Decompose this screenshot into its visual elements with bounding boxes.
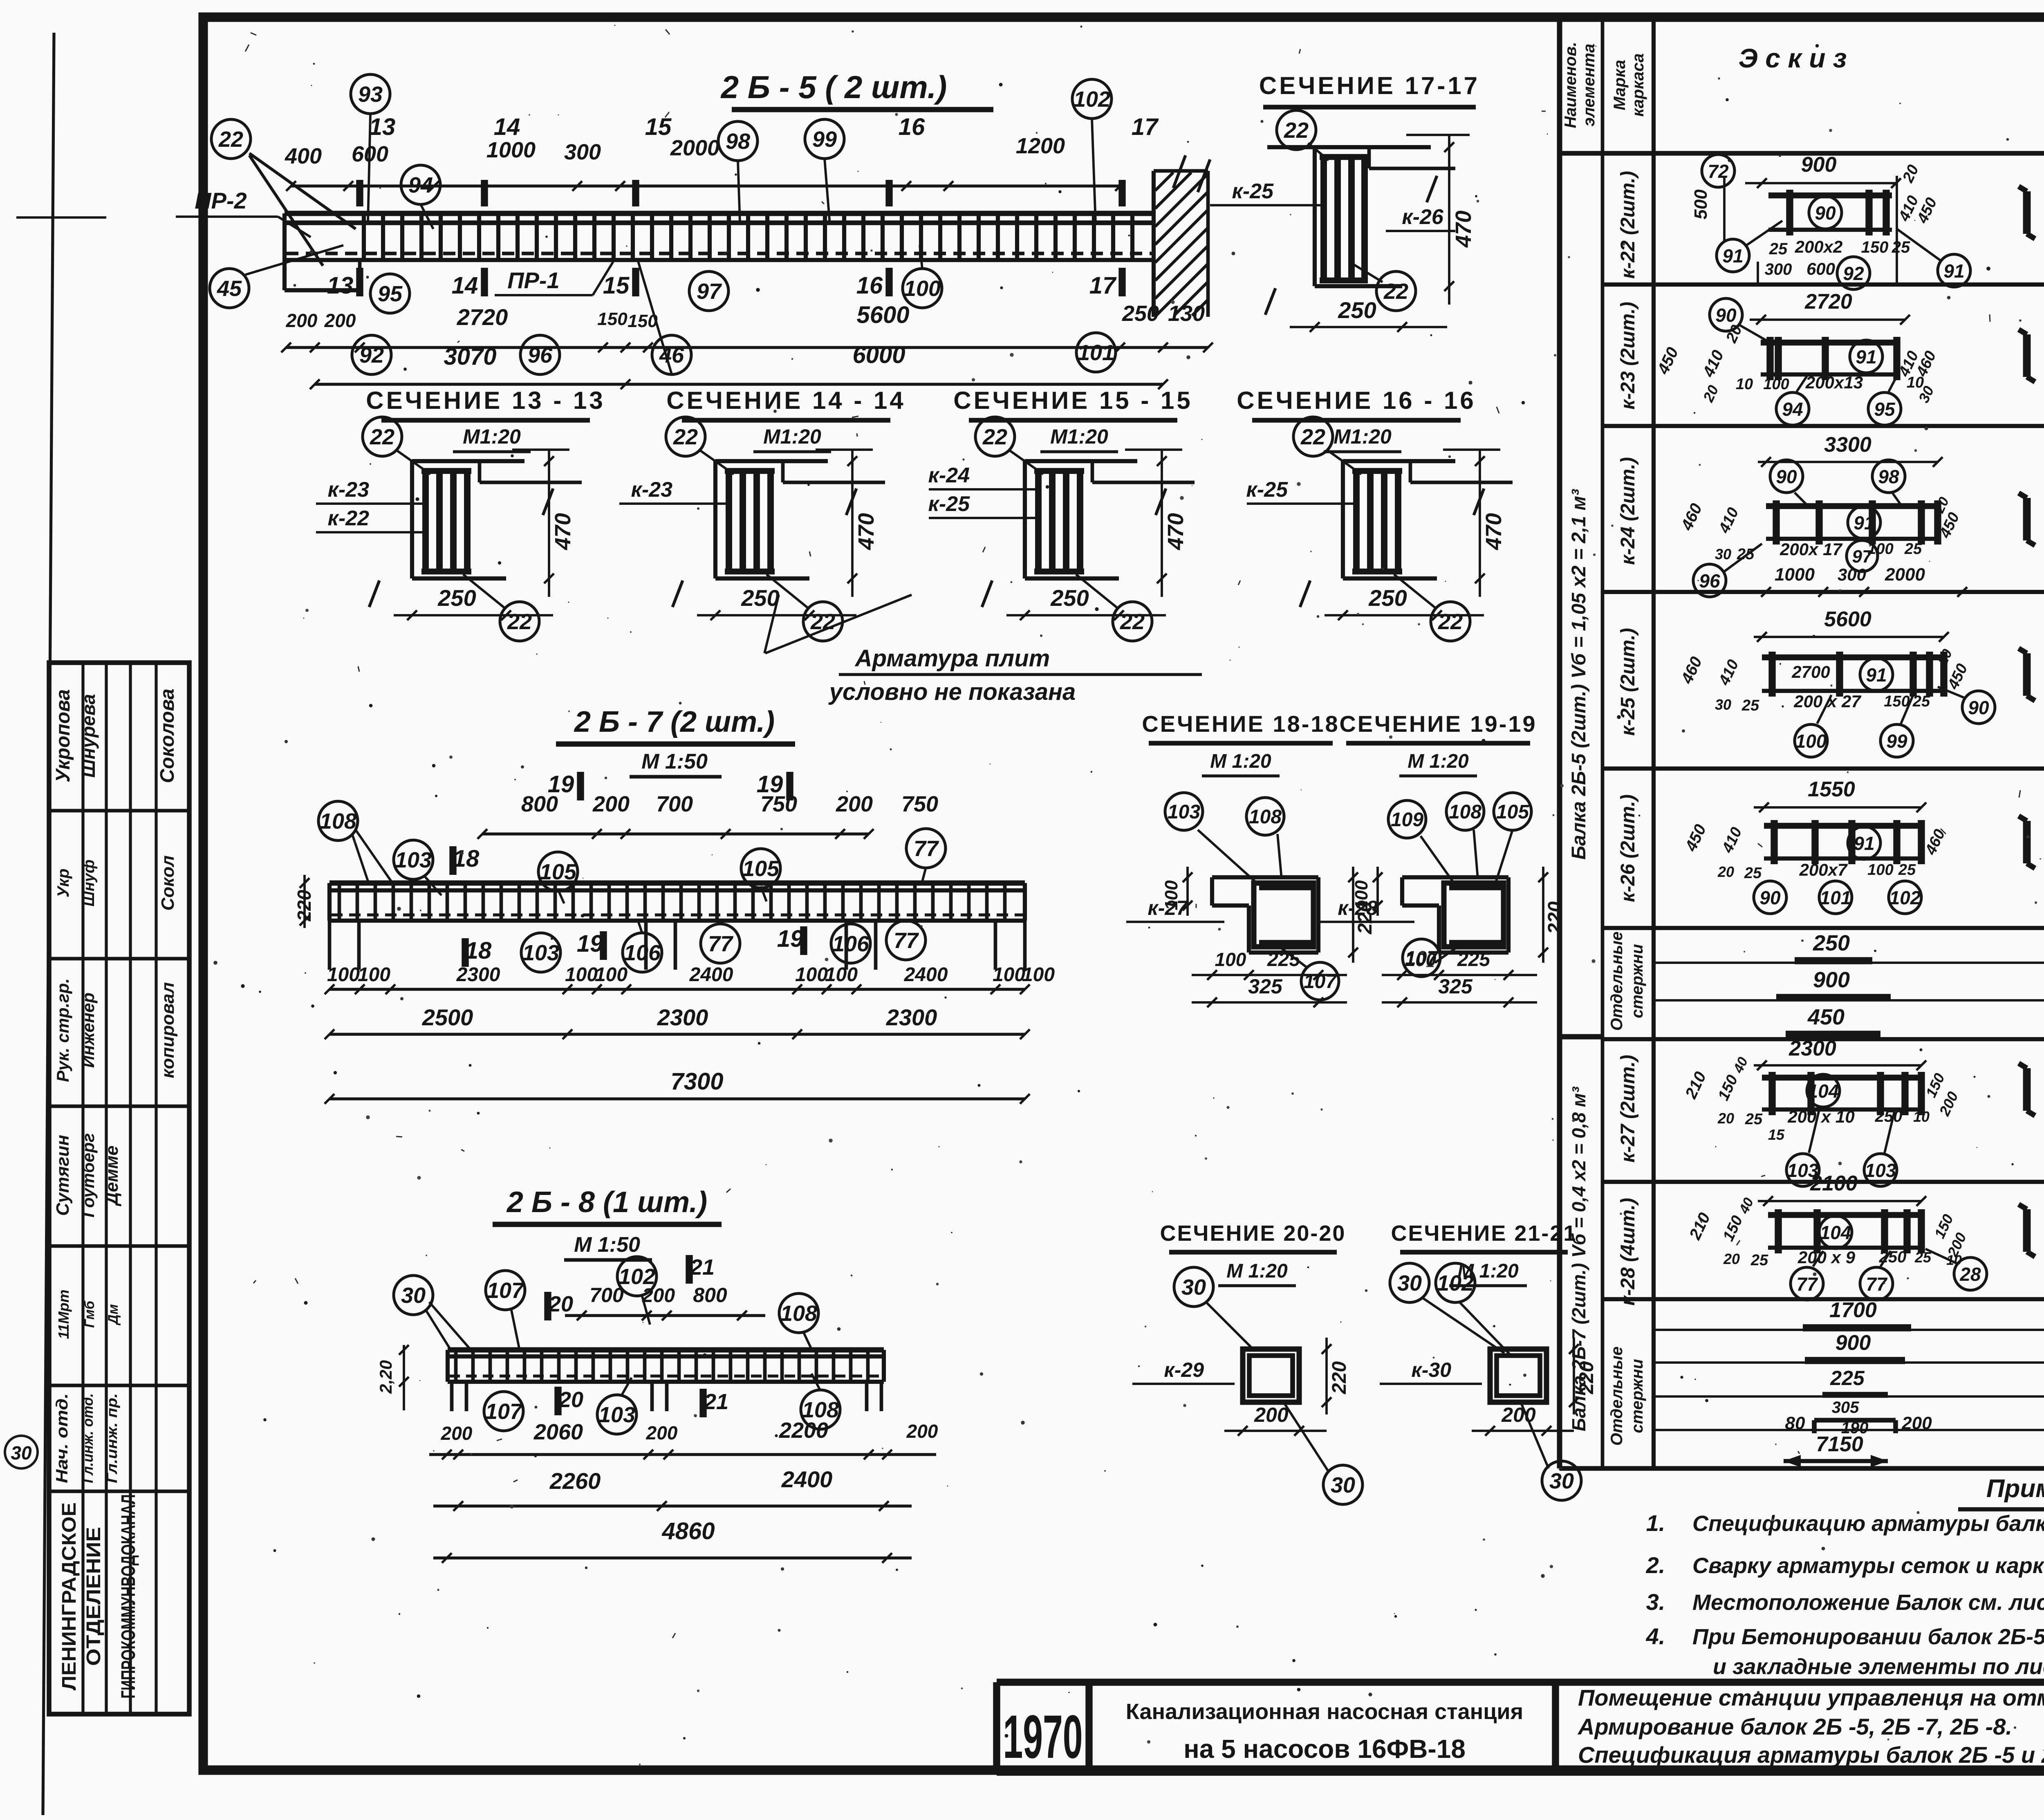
svg-text:150: 150 <box>597 309 628 329</box>
svg-text:900: 900 <box>1836 1331 1871 1355</box>
svg-text:103: 103 <box>522 941 559 965</box>
svg-text:250: 250 <box>1050 585 1089 611</box>
svg-text:4.: 4. <box>1646 1623 1665 1649</box>
svg-text:к-25: к-25 <box>1246 478 1288 502</box>
svg-text:Шнурева: Шнурева <box>78 694 99 778</box>
svg-text:107: 107 <box>485 1399 523 1424</box>
svg-text:22: 22 <box>1284 118 1309 143</box>
svg-text:700: 700 <box>656 792 693 816</box>
svg-text:2300: 2300 <box>886 1004 937 1030</box>
svg-text:10: 10 <box>1736 376 1753 393</box>
svg-text:800: 800 <box>693 1284 727 1307</box>
svg-text:200 х 9: 200 х 9 <box>1797 1248 1856 1267</box>
svg-text:22: 22 <box>1383 279 1408 304</box>
svg-text:21: 21 <box>704 1390 728 1414</box>
svg-text:СЕЧЕНИЕ 18-18: СЕЧЕНИЕ 18-18 <box>1142 711 1339 737</box>
svg-text:105: 105 <box>742 856 780 881</box>
svg-text:200: 200 <box>642 1285 675 1307</box>
svg-text:95: 95 <box>378 282 403 306</box>
svg-text:Отдельные: Отдельные <box>1608 1347 1626 1446</box>
svg-text:Демме: Демме <box>102 1145 122 1207</box>
svg-text:104: 104 <box>1820 1222 1851 1243</box>
svg-text:92: 92 <box>1843 263 1864 284</box>
svg-text:80: 80 <box>1785 1413 1805 1433</box>
svg-text:28: 28 <box>1959 1264 1981 1285</box>
svg-text:элемента: элемента <box>1580 44 1598 126</box>
svg-text:250: 250 <box>1368 585 1407 611</box>
svg-text:91: 91 <box>1943 260 1964 282</box>
svg-text:90: 90 <box>1759 887 1781 908</box>
svg-text:Отдельные: Отдельные <box>1608 932 1626 1031</box>
svg-text:Соколова: Соколова <box>157 688 178 783</box>
svg-text:450: 450 <box>1807 1005 1845 1029</box>
svg-text:600: 600 <box>1806 259 1835 278</box>
svg-text:2300: 2300 <box>657 1004 708 1030</box>
svg-text:к-24 (2шт.): к-24 (2шт.) <box>1617 457 1639 565</box>
svg-text:3300: 3300 <box>1824 433 1871 457</box>
svg-text:103: 103 <box>1865 1160 1896 1181</box>
svg-text:25: 25 <box>1769 240 1788 258</box>
svg-text:400: 400 <box>285 144 322 168</box>
svg-text:М 1:20: М 1:20 <box>1226 1260 1288 1282</box>
svg-text:106: 106 <box>832 932 870 956</box>
svg-text:470: 470 <box>1451 211 1476 248</box>
svg-text:30: 30 <box>401 1283 426 1308</box>
svg-text:М 1:20: М 1:20 <box>1210 751 1271 772</box>
svg-text:19: 19 <box>777 926 804 952</box>
svg-text:470: 470 <box>1163 513 1188 550</box>
svg-text:750: 750 <box>760 792 797 816</box>
svg-text:20: 20 <box>558 1387 583 1412</box>
svg-text:2 Б - 5 ( 2 шт.): 2 Б - 5 ( 2 шт.) <box>720 69 947 105</box>
svg-text:900: 900 <box>1813 968 1850 992</box>
svg-text:к-30: к-30 <box>1411 1358 1451 1381</box>
svg-text:77: 77 <box>1866 1273 1888 1295</box>
svg-text:900: 900 <box>1801 153 1837 177</box>
svg-text:90: 90 <box>1715 305 1737 326</box>
svg-text:Дм: Дм <box>105 1304 121 1326</box>
svg-text:200: 200 <box>906 1421 938 1442</box>
svg-text:7150: 7150 <box>1816 1432 1863 1456</box>
svg-text:к-23 (2шт.): к-23 (2шт.) <box>1617 302 1639 410</box>
svg-text:Сварку арматуры сеток и к: Сварку арматуры сеток и каркасов произво… <box>1692 1553 2044 1578</box>
svg-text:1200: 1200 <box>1016 134 1065 158</box>
svg-text:225: 225 <box>1457 949 1490 971</box>
svg-text:2400: 2400 <box>781 1466 833 1492</box>
svg-text:25: 25 <box>1744 865 1762 882</box>
svg-text:91: 91 <box>1866 664 1887 686</box>
svg-text:3070: 3070 <box>444 343 496 370</box>
svg-text:107: 107 <box>1304 971 1337 993</box>
svg-text:и закладные элементы: и закладные элементы по листам АС-80; 81 <box>1713 1654 2044 1679</box>
svg-text:14: 14 <box>494 114 520 140</box>
svg-text:Примечания:: Примечания: <box>1986 1475 2044 1503</box>
svg-text:104: 104 <box>1808 1080 1839 1102</box>
svg-text:100: 100 <box>358 964 390 986</box>
svg-text:100: 100 <box>795 964 828 986</box>
svg-text:25: 25 <box>1741 697 1759 714</box>
svg-text:25: 25 <box>1745 1111 1763 1128</box>
svg-text:Гмб: Гмб <box>82 1300 97 1328</box>
svg-text:98: 98 <box>726 129 750 154</box>
svg-text:Сокол: Сокол <box>158 855 178 910</box>
svg-text:200: 200 <box>646 1422 678 1443</box>
svg-text:200: 200 <box>324 310 356 331</box>
svg-text:к-23: к-23 <box>631 478 672 502</box>
svg-text:к-27: к-27 <box>1148 897 1188 919</box>
svg-text:96: 96 <box>528 343 553 368</box>
svg-text:105: 105 <box>1496 801 1529 823</box>
svg-text:1000: 1000 <box>1775 565 1815 585</box>
svg-text:100: 100 <box>327 964 360 986</box>
svg-text:Спецификация арматуры балок: Спецификация арматуры балок 2Б -5 и 2Б -… <box>1578 1742 2044 1768</box>
svg-text:Армирование балок 2Б -5, 2Б -: Армирование балок 2Б -5, 2Б -7, 2Б -8. <box>1577 1714 2012 1739</box>
svg-text:Гоутберг: Гоутберг <box>78 1133 98 1217</box>
svg-text:108: 108 <box>320 809 356 834</box>
svg-text:7300: 7300 <box>670 1068 723 1095</box>
svg-text:30: 30 <box>1715 696 1731 713</box>
svg-text:При Бетонировании балок: При Бетонировании балок 2Б-5, 2Б-7, 2Б-8… <box>1692 1625 2044 1649</box>
svg-text:22: 22 <box>218 127 243 152</box>
svg-text:250: 250 <box>1338 297 1376 323</box>
svg-text:18: 18 <box>465 937 492 964</box>
svg-text:к-22: к-22 <box>327 507 369 530</box>
svg-text:101: 101 <box>1820 887 1851 908</box>
svg-text:к-22 (2шт.): к-22 (2шт.) <box>1617 171 1639 279</box>
svg-text:Шнуф: Шнуф <box>81 860 98 907</box>
svg-text:108: 108 <box>1249 806 1282 828</box>
svg-text:2400: 2400 <box>904 964 948 986</box>
svg-text:91: 91 <box>1853 512 1874 533</box>
svg-text:к-25: к-25 <box>1232 179 1274 203</box>
svg-text:105: 105 <box>540 860 577 884</box>
svg-text:11Мрт: 11Мрт <box>55 1289 72 1339</box>
svg-text:94: 94 <box>408 173 433 197</box>
svg-text:250: 250 <box>741 585 779 611</box>
svg-text:109: 109 <box>1391 809 1423 831</box>
svg-text:Арматура плит: Арматура плит <box>854 645 1050 672</box>
svg-text:22: 22 <box>1300 425 1325 449</box>
svg-text:30: 30 <box>1549 1469 1574 1493</box>
svg-text:2500: 2500 <box>422 1004 473 1030</box>
svg-text:77: 77 <box>1796 1273 1818 1295</box>
svg-text:13: 13 <box>327 272 354 299</box>
svg-text:220: 220 <box>1544 901 1566 935</box>
svg-text:93: 93 <box>358 82 383 107</box>
svg-text:2100: 2100 <box>1810 1172 1858 1195</box>
svg-text:2 Б - 7 (2 шт.): 2 Б - 7 (2 шт.) <box>574 706 775 738</box>
svg-text:100: 100 <box>904 276 941 301</box>
svg-text:20: 20 <box>548 1292 573 1316</box>
svg-text:стержни: стержни <box>1628 1359 1646 1433</box>
svg-text:200: 200 <box>1901 1413 1932 1433</box>
svg-text:130: 130 <box>1168 301 1205 326</box>
svg-text:91: 91 <box>1856 346 1876 368</box>
svg-text:Наименов.: Наименов. <box>1562 42 1580 128</box>
svg-text:108: 108 <box>1449 801 1481 823</box>
svg-text:470: 470 <box>1481 513 1506 550</box>
svg-text:90: 90 <box>1815 202 1836 224</box>
svg-text:1700: 1700 <box>1829 1298 1877 1322</box>
svg-text:300: 300 <box>1765 260 1792 278</box>
svg-text:СЕЧЕНИЕ 15 - 15: СЕЧЕНИЕ 15 - 15 <box>953 387 1192 414</box>
svg-text:стержни: стержни <box>1628 944 1646 1018</box>
svg-text:М1:20: М1:20 <box>1334 425 1392 448</box>
svg-text:1000: 1000 <box>486 138 536 162</box>
svg-text:150: 150 <box>1884 693 1910 710</box>
svg-text:72: 72 <box>1708 161 1729 182</box>
svg-text:100: 100 <box>1867 861 1893 879</box>
svg-text:102: 102 <box>1074 87 1110 112</box>
svg-text:30: 30 <box>1331 1473 1355 1497</box>
svg-text:на 5 насосов 16ФВ-18: на 5 насосов 16ФВ-18 <box>1183 1734 1466 1764</box>
svg-text:100: 100 <box>595 964 628 986</box>
svg-text:2720: 2720 <box>457 304 508 330</box>
svg-text:2700: 2700 <box>1791 662 1830 681</box>
svg-text:250: 250 <box>1122 301 1159 326</box>
svg-text:250: 250 <box>1875 1107 1903 1125</box>
svg-text:4860: 4860 <box>661 1518 715 1544</box>
svg-text:22: 22 <box>982 425 1007 449</box>
svg-text:5600: 5600 <box>1824 607 1871 631</box>
svg-text:14: 14 <box>452 272 478 299</box>
svg-text:Спецификацию арматуры ба: Спецификацию арматуры балки 2Б-8 см. лис… <box>1692 1511 2044 1536</box>
svg-text:Балка 2Б-5 (2шт.) Vб = 1,: Балка 2Б-5 (2шт.) Vб = 1,05 х2 = 2,1 м³ <box>1568 489 1590 860</box>
svg-text:Местоположение Балок: Местоположение Балок см. лист АС-80 <box>1692 1590 2044 1615</box>
svg-text:800: 800 <box>521 792 558 816</box>
svg-text:150: 150 <box>1861 238 1889 256</box>
svg-text:Канализационная насосная с: Канализационная насосная станция <box>1126 1699 1523 1724</box>
svg-text:22: 22 <box>370 425 394 449</box>
svg-text:30: 30 <box>1715 546 1731 563</box>
svg-text:200: 200 <box>441 1423 473 1444</box>
svg-text:ГИПРОКОММУНВОДОКАНАЛ: ГИПРОКОММУНВОДОКАНАЛ <box>118 1494 139 1699</box>
svg-text:20: 20 <box>1723 1251 1740 1267</box>
svg-text:700: 700 <box>589 1284 624 1307</box>
svg-text:2260: 2260 <box>549 1468 601 1494</box>
svg-text:90: 90 <box>1968 697 1989 718</box>
svg-text:470: 470 <box>551 513 575 550</box>
svg-text:100: 100 <box>1763 376 1789 393</box>
svg-text:250: 250 <box>1813 931 1850 955</box>
svg-text:100: 100 <box>825 964 858 986</box>
svg-text:470: 470 <box>854 513 879 550</box>
svg-text:копировал: копировал <box>158 982 178 1078</box>
svg-text:15: 15 <box>603 272 630 299</box>
svg-text:20: 20 <box>1717 863 1734 880</box>
svg-text:19: 19 <box>577 930 603 957</box>
svg-text:15: 15 <box>645 114 672 140</box>
svg-text:к-23: к-23 <box>327 478 369 502</box>
svg-text:СЕЧЕНИЕ 14 - 14: СЕЧЕНИЕ 14 - 14 <box>666 387 905 414</box>
svg-text:М 1:50: М 1:50 <box>641 750 708 773</box>
svg-text:к-26 (2шт.): к-26 (2шт.) <box>1617 794 1639 902</box>
svg-text:2400: 2400 <box>689 964 733 986</box>
svg-text:условно не показана: условно не показана <box>828 679 1076 705</box>
svg-text:20: 20 <box>1717 1110 1734 1127</box>
svg-text:17: 17 <box>1089 272 1117 299</box>
svg-text:ОТДЕЛЕНИЕ: ОТДЕЛЕНИЕ <box>83 1527 105 1666</box>
svg-text:2300: 2300 <box>1788 1037 1836 1060</box>
svg-text:750: 750 <box>901 792 938 816</box>
svg-text:17: 17 <box>1132 114 1159 140</box>
svg-text:99: 99 <box>812 127 837 152</box>
svg-text:18: 18 <box>453 845 480 872</box>
svg-text:25: 25 <box>1904 540 1922 558</box>
svg-text:106: 106 <box>624 941 661 965</box>
svg-text:СЕЧЕНИЕ 16 - 16: СЕЧЕНИЕ 16 - 16 <box>1237 387 1476 414</box>
svg-text:2.: 2. <box>1646 1552 1665 1578</box>
svg-text:22: 22 <box>1120 610 1145 634</box>
svg-text:2060: 2060 <box>533 1420 583 1444</box>
svg-text:100: 100 <box>565 964 598 986</box>
svg-text:2000: 2000 <box>1885 565 1925 585</box>
svg-text:к-27 (2шт.): к-27 (2шт.) <box>1617 1055 1639 1163</box>
svg-text:21: 21 <box>690 1255 715 1280</box>
svg-text:103: 103 <box>1168 801 1200 823</box>
svg-text:М1:20: М1:20 <box>1050 425 1108 448</box>
svg-text:25: 25 <box>1892 238 1910 256</box>
svg-text:к-25 (2шт.): к-25 (2шт.) <box>1617 628 1639 736</box>
svg-text:200х 17: 200х 17 <box>1780 540 1842 559</box>
svg-text:1970: 1970 <box>1003 1702 1083 1771</box>
svg-text:М 1:50: М 1:50 <box>574 1233 640 1257</box>
svg-text:ЛЕНИНГРАДСКОЕ: ЛЕНИНГРАДСКОЕ <box>58 1502 80 1690</box>
svg-text:2200: 2200 <box>779 1418 828 1443</box>
svg-text:45: 45 <box>217 276 242 301</box>
svg-text:200: 200 <box>836 792 873 816</box>
svg-text:22: 22 <box>1438 610 1463 634</box>
svg-text:15: 15 <box>1768 1126 1785 1143</box>
svg-text:300: 300 <box>1838 565 1866 584</box>
svg-text:6000: 6000 <box>852 342 905 368</box>
svg-text:ПР-2: ПР-2 <box>195 188 247 213</box>
svg-text:500: 500 <box>1691 189 1711 220</box>
svg-text:2300: 2300 <box>456 964 500 986</box>
svg-text:10: 10 <box>1913 1108 1930 1125</box>
svg-text:Инженер: Инженер <box>78 993 98 1068</box>
svg-text:96: 96 <box>1699 570 1720 592</box>
svg-text:100: 100 <box>1215 949 1246 970</box>
svg-text:Рук. стр.гр.: Рук. стр.гр. <box>53 978 72 1082</box>
svg-text:Нач. отд.: Нач. отд. <box>53 1393 71 1483</box>
svg-text:200 х 10: 200 х 10 <box>1787 1107 1855 1126</box>
svg-text:Помещение станции управленця: Помещение станции управленця на отм. 4.6… <box>1578 1685 2044 1710</box>
svg-text:Марка: Марка <box>1611 60 1629 110</box>
svg-text:2000: 2000 <box>670 136 719 160</box>
svg-text:СЕЧЕНИЕ 17-17: СЕЧЕНИЕ 17-17 <box>1259 72 1480 99</box>
svg-text:1.: 1. <box>1646 1510 1665 1536</box>
svg-text:25: 25 <box>1912 693 1930 710</box>
svg-text:305: 305 <box>1832 1399 1859 1417</box>
svg-text:5600: 5600 <box>856 302 909 328</box>
svg-text:91: 91 <box>1853 833 1874 854</box>
svg-text:22: 22 <box>507 610 532 634</box>
svg-text:к-28: к-28 <box>1338 897 1378 919</box>
svg-text:Гл.инж. пр.: Гл.инж. пр. <box>103 1393 120 1483</box>
svg-text:100: 100 <box>993 964 1025 986</box>
svg-text:200: 200 <box>286 310 318 331</box>
svg-text:101: 101 <box>1078 341 1114 365</box>
svg-text:200: 200 <box>1254 1403 1289 1426</box>
svg-text:Укр: Укр <box>54 869 72 898</box>
svg-text:СЕЧЕНИЕ 21-21: СЕЧЕНИЕ 21-21 <box>1391 1221 1577 1246</box>
svg-text:94: 94 <box>1782 399 1803 420</box>
svg-text:2,20: 2,20 <box>376 1360 395 1394</box>
svg-text:к-26: к-26 <box>1402 205 1444 229</box>
svg-text:Гл.инж. отд.: Гл.инж. отд. <box>79 1393 96 1483</box>
svg-text:97: 97 <box>697 279 722 304</box>
svg-text:200: 200 <box>592 792 630 816</box>
svg-text:Э с к и з: Э с к и з <box>1739 43 1847 73</box>
svg-text:СЕЧЕНИЕ 13 - 13: СЕЧЕНИЕ 13 - 13 <box>366 387 605 414</box>
svg-text:30: 30 <box>11 1442 32 1464</box>
svg-text:108: 108 <box>780 1301 817 1326</box>
svg-text:200х2: 200х2 <box>1795 237 1843 256</box>
svg-text:30: 30 <box>1181 1275 1206 1300</box>
svg-text:325: 325 <box>1248 975 1283 998</box>
svg-text:107: 107 <box>487 1278 525 1303</box>
svg-text:16: 16 <box>856 272 883 299</box>
svg-text:Балка 2Б-7 (2шт.) Vб = 0,4: Балка 2Б-7 (2шт.) Vб = 0,4 х2 = 0,8 м³ <box>1568 1086 1589 1431</box>
svg-text:220: 220 <box>1329 1361 1350 1394</box>
svg-text:13: 13 <box>369 114 396 140</box>
svg-text:95: 95 <box>1874 399 1896 420</box>
svg-text:М1:20: М1:20 <box>763 425 821 448</box>
svg-text:ПР-1: ПР-1 <box>507 267 559 293</box>
svg-text:3.: 3. <box>1646 1589 1665 1615</box>
svg-text:77: 77 <box>708 932 734 956</box>
svg-text:каркаса: каркаса <box>1629 54 1647 117</box>
svg-text:к-29: к-29 <box>1164 1358 1204 1381</box>
svg-text:97: 97 <box>1852 547 1873 567</box>
svg-text:225: 225 <box>1830 1367 1865 1390</box>
svg-text:2 Б - 8 (1 шт.): 2 Б - 8 (1 шт.) <box>506 1186 707 1219</box>
svg-text:90: 90 <box>1776 466 1797 487</box>
svg-text:22: 22 <box>673 425 698 449</box>
svg-text:25: 25 <box>1898 861 1916 879</box>
svg-text:77: 77 <box>894 928 919 953</box>
svg-text:М 1:20: М 1:20 <box>1407 751 1469 772</box>
svg-text:102: 102 <box>1889 887 1921 908</box>
svg-text:200х7: 200х7 <box>1799 860 1848 879</box>
svg-text:16: 16 <box>899 114 925 140</box>
svg-text:СЕЧЕНИЕ 19-19: СЕЧЕНИЕ 19-19 <box>1339 711 1537 737</box>
svg-text:250: 250 <box>437 585 476 611</box>
svg-text:98: 98 <box>1878 466 1899 487</box>
svg-text:2720: 2720 <box>1804 290 1852 314</box>
svg-text:1550: 1550 <box>1808 778 1855 801</box>
svg-text:М1:20: М1:20 <box>463 425 521 448</box>
svg-text:Сутягин: Сутягин <box>53 1135 73 1216</box>
svg-text:325: 325 <box>1438 975 1473 998</box>
svg-text:103: 103 <box>598 1403 635 1427</box>
svg-text:Укропова: Укропова <box>52 689 74 782</box>
svg-text:к-24: к-24 <box>928 464 970 487</box>
svg-text:25: 25 <box>1750 1252 1768 1269</box>
svg-text:30: 30 <box>1397 1271 1422 1296</box>
svg-text:300: 300 <box>564 140 601 164</box>
svg-text:92: 92 <box>359 343 384 368</box>
svg-text:77: 77 <box>914 836 939 861</box>
svg-text:102: 102 <box>1437 1271 1474 1296</box>
svg-text:к-25: к-25 <box>928 492 970 516</box>
svg-text:СЕЧЕНИЕ 20-20: СЕЧЕНИЕ 20-20 <box>1160 1221 1346 1246</box>
svg-text:99: 99 <box>1886 731 1907 752</box>
svg-text:100: 100 <box>1795 731 1827 752</box>
svg-text:91: 91 <box>1722 245 1743 267</box>
svg-text:100: 100 <box>1022 964 1055 986</box>
